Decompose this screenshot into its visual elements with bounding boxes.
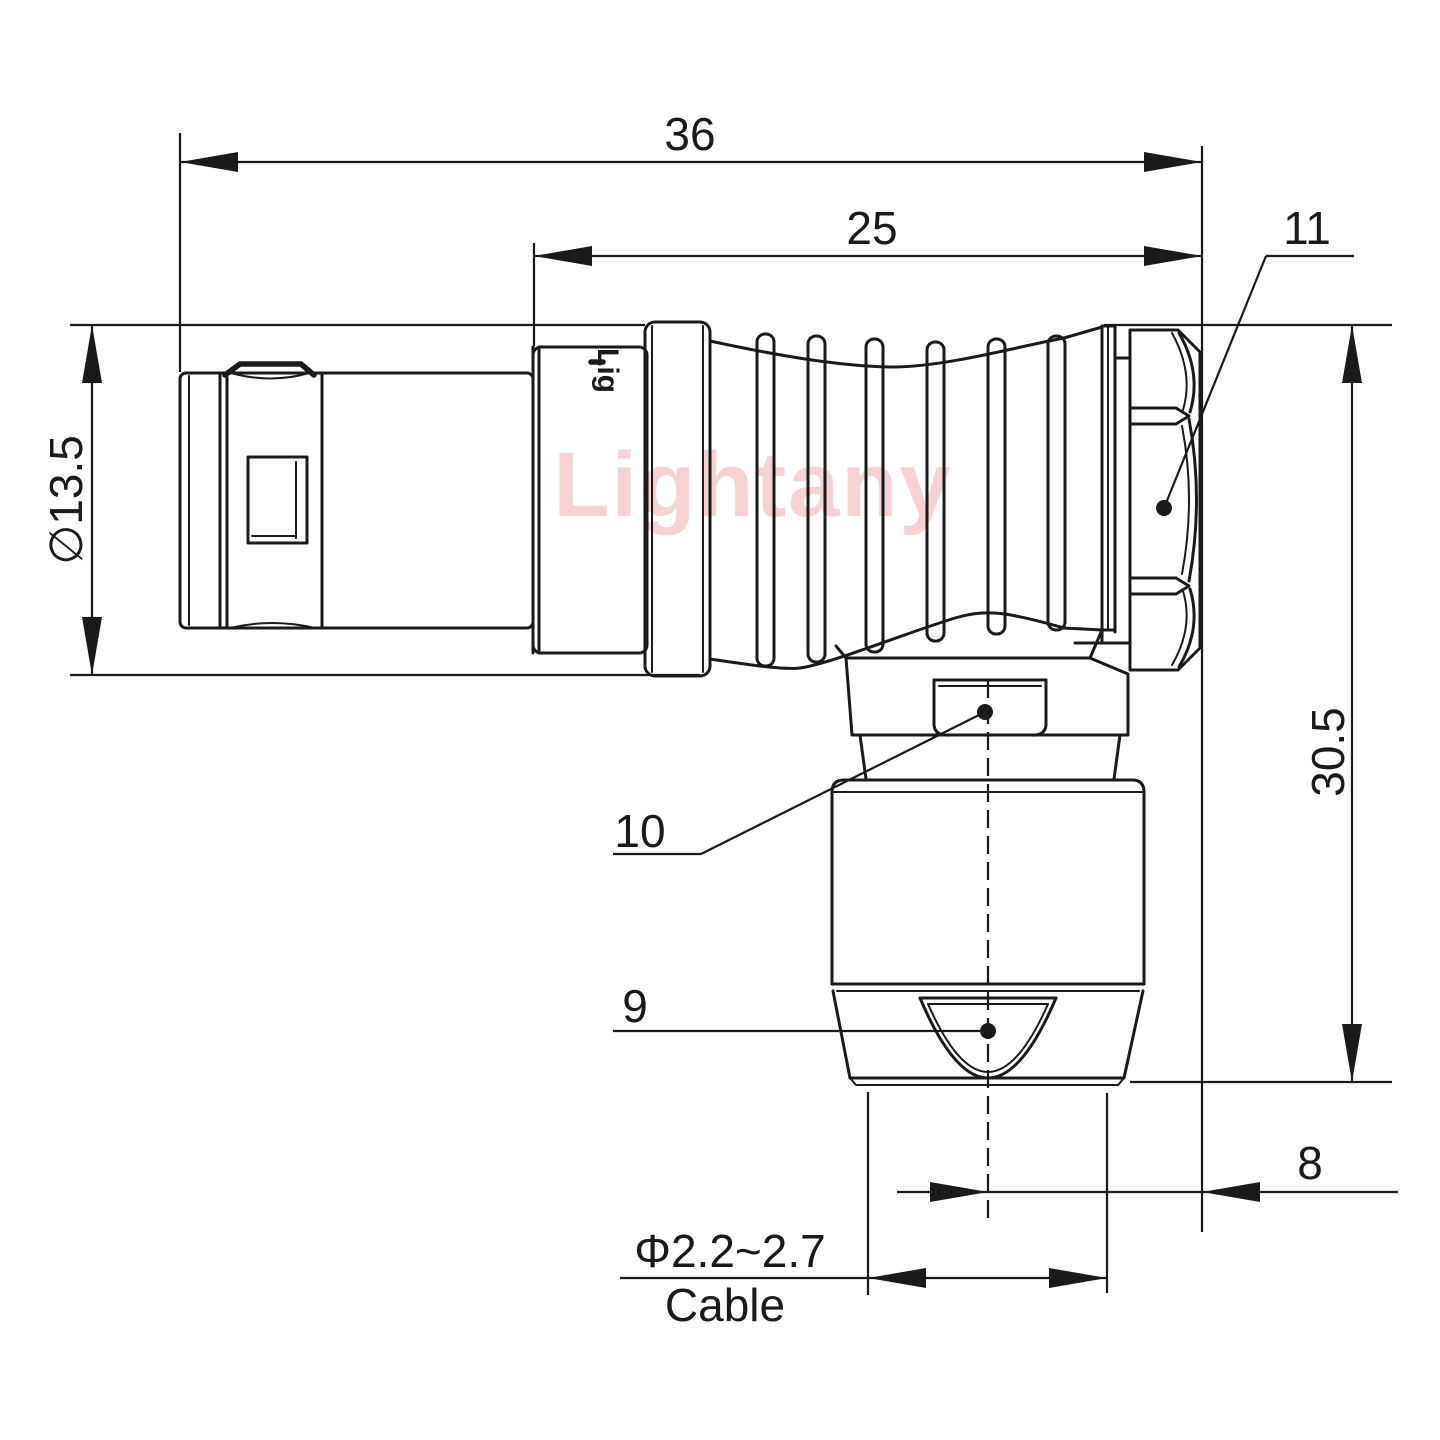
- callout-9: 9: [613, 980, 996, 1039]
- dim-diameter-label: ∅13.5: [40, 435, 92, 565]
- callout-10-label: 10: [614, 805, 665, 857]
- key-window: [248, 457, 307, 543]
- arrowhead-right-icon: [1144, 152, 1202, 172]
- dimension-axis-to-face: 8: [897, 1137, 1398, 1202]
- dim-8-label: 8: [1297, 1137, 1323, 1189]
- callout-dot: [977, 704, 993, 720]
- arrowhead-left-icon: [534, 246, 592, 266]
- callout-11-label: 11: [1283, 202, 1331, 254]
- arrowhead-left-icon: [868, 1268, 926, 1288]
- elbow-body: [836, 630, 1128, 779]
- part-marking-text: Lig: [591, 348, 624, 393]
- callout-11: 11: [1156, 202, 1354, 516]
- dim-36-label: 36: [664, 108, 715, 160]
- dimension-overall-length: 36: [180, 108, 1202, 1232]
- arrowhead-right-icon: [1144, 246, 1202, 266]
- dimension-cable: Φ2.2~2.7 Cable: [620, 1092, 1107, 1331]
- dimension-height: 30.5: [1104, 325, 1392, 1082]
- arrowhead-left-icon: [1202, 1182, 1260, 1202]
- dim-25-label: 25: [846, 202, 897, 254]
- arrowhead-down-icon: [1342, 1024, 1362, 1082]
- cable-range-label: Φ2.2~2.7: [634, 1225, 825, 1277]
- washer-collar: [1075, 326, 1130, 643]
- watermark-text: Lightany: [553, 434, 952, 536]
- arrowhead-down-icon: [82, 617, 102, 675]
- arrowhead-up-icon: [1342, 325, 1362, 383]
- dim-height-label: 30.5: [1302, 707, 1354, 797]
- arrowhead-right-icon: [930, 1182, 988, 1202]
- callout-dot: [980, 1023, 996, 1039]
- callout-dot: [1156, 500, 1172, 516]
- plug-barrel: [180, 364, 533, 628]
- hex-nut: [1130, 330, 1200, 670]
- arrowhead-right-icon: [1049, 1268, 1107, 1288]
- cable-label: Cable: [665, 1279, 785, 1331]
- drawing-canvas: Lightany Lig: [0, 0, 1440, 1440]
- arrowhead-up-icon: [82, 325, 102, 383]
- connector-technical-drawing: Lightany Lig: [0, 0, 1440, 1440]
- arrowhead-left-icon: [180, 152, 238, 172]
- callout-9-label: 9: [622, 980, 648, 1032]
